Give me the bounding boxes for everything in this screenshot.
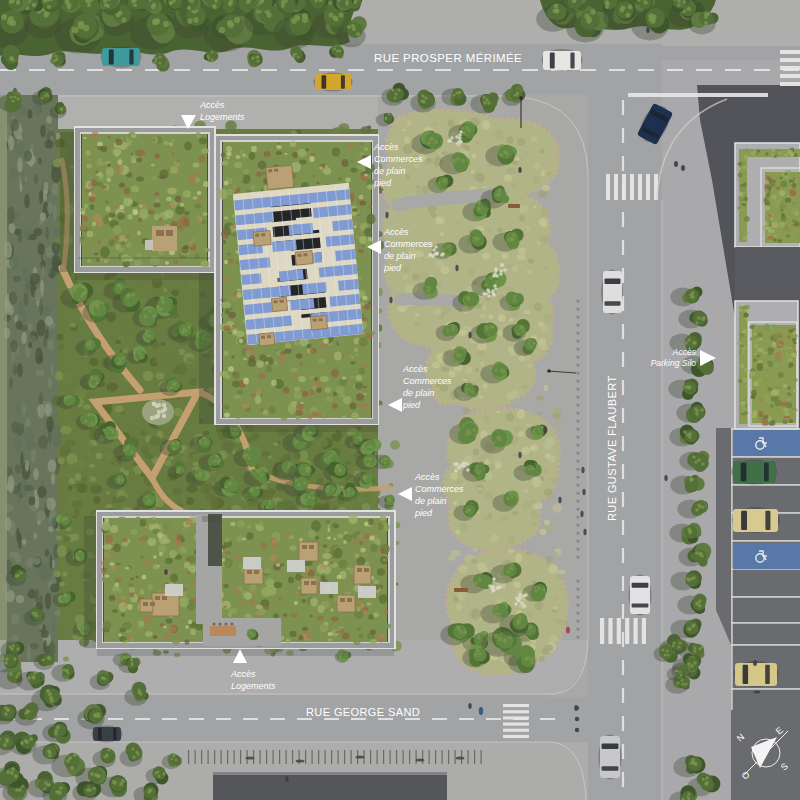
svg-text:Commerces: Commerces [374, 154, 423, 164]
svg-text:RUE PROSPER MÉRIMÉE: RUE PROSPER MÉRIMÉE [374, 52, 522, 64]
svg-text:Logements: Logements [200, 112, 245, 122]
svg-text:de plain: de plain [384, 251, 416, 261]
svg-text:pied: pied [383, 263, 402, 273]
svg-text:pied: pied [414, 508, 433, 518]
svg-text:Commerces: Commerces [403, 376, 452, 386]
svg-text:Commerces: Commerces [415, 484, 464, 494]
svg-text:RUE GEORGE SAND: RUE GEORGE SAND [306, 706, 420, 718]
svg-text:Accès: Accès [373, 142, 399, 152]
svg-text:RUE GUSTAVE FLAUBERT: RUE GUSTAVE FLAUBERT [606, 375, 618, 521]
svg-text:Accès: Accès [230, 669, 256, 679]
svg-text:pied: pied [373, 178, 392, 188]
svg-text:Accès: Accès [402, 364, 428, 374]
svg-text:Accès: Accès [199, 100, 225, 110]
svg-text:Parking Silo: Parking Silo [651, 358, 697, 368]
svg-text:Accès: Accès [383, 227, 409, 237]
svg-text:Accès: Accès [414, 472, 440, 482]
svg-text:Accès: Accès [672, 347, 697, 357]
svg-text:de plain: de plain [415, 496, 447, 506]
svg-text:Logements: Logements [231, 681, 276, 691]
svg-text:de plain: de plain [374, 166, 406, 176]
svg-text:Commerces: Commerces [384, 239, 433, 249]
svg-text:pied: pied [402, 400, 421, 410]
svg-text:de plain: de plain [403, 388, 435, 398]
